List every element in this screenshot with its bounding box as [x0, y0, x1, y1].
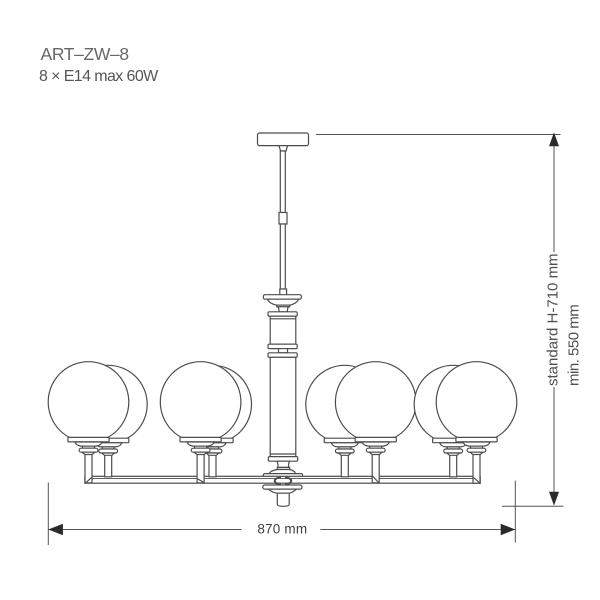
svg-text:8 × E14 max 60W: 8 × E14 max 60W [39, 68, 159, 85]
svg-text:ART–ZW–8: ART–ZW–8 [41, 44, 129, 64]
svg-text:standard H-710 mm: standard H-710 mm [545, 253, 562, 386]
svg-text:870 mm: 870 mm [257, 522, 307, 537]
svg-text:min. 550 mm: min. 550 mm [566, 305, 583, 386]
